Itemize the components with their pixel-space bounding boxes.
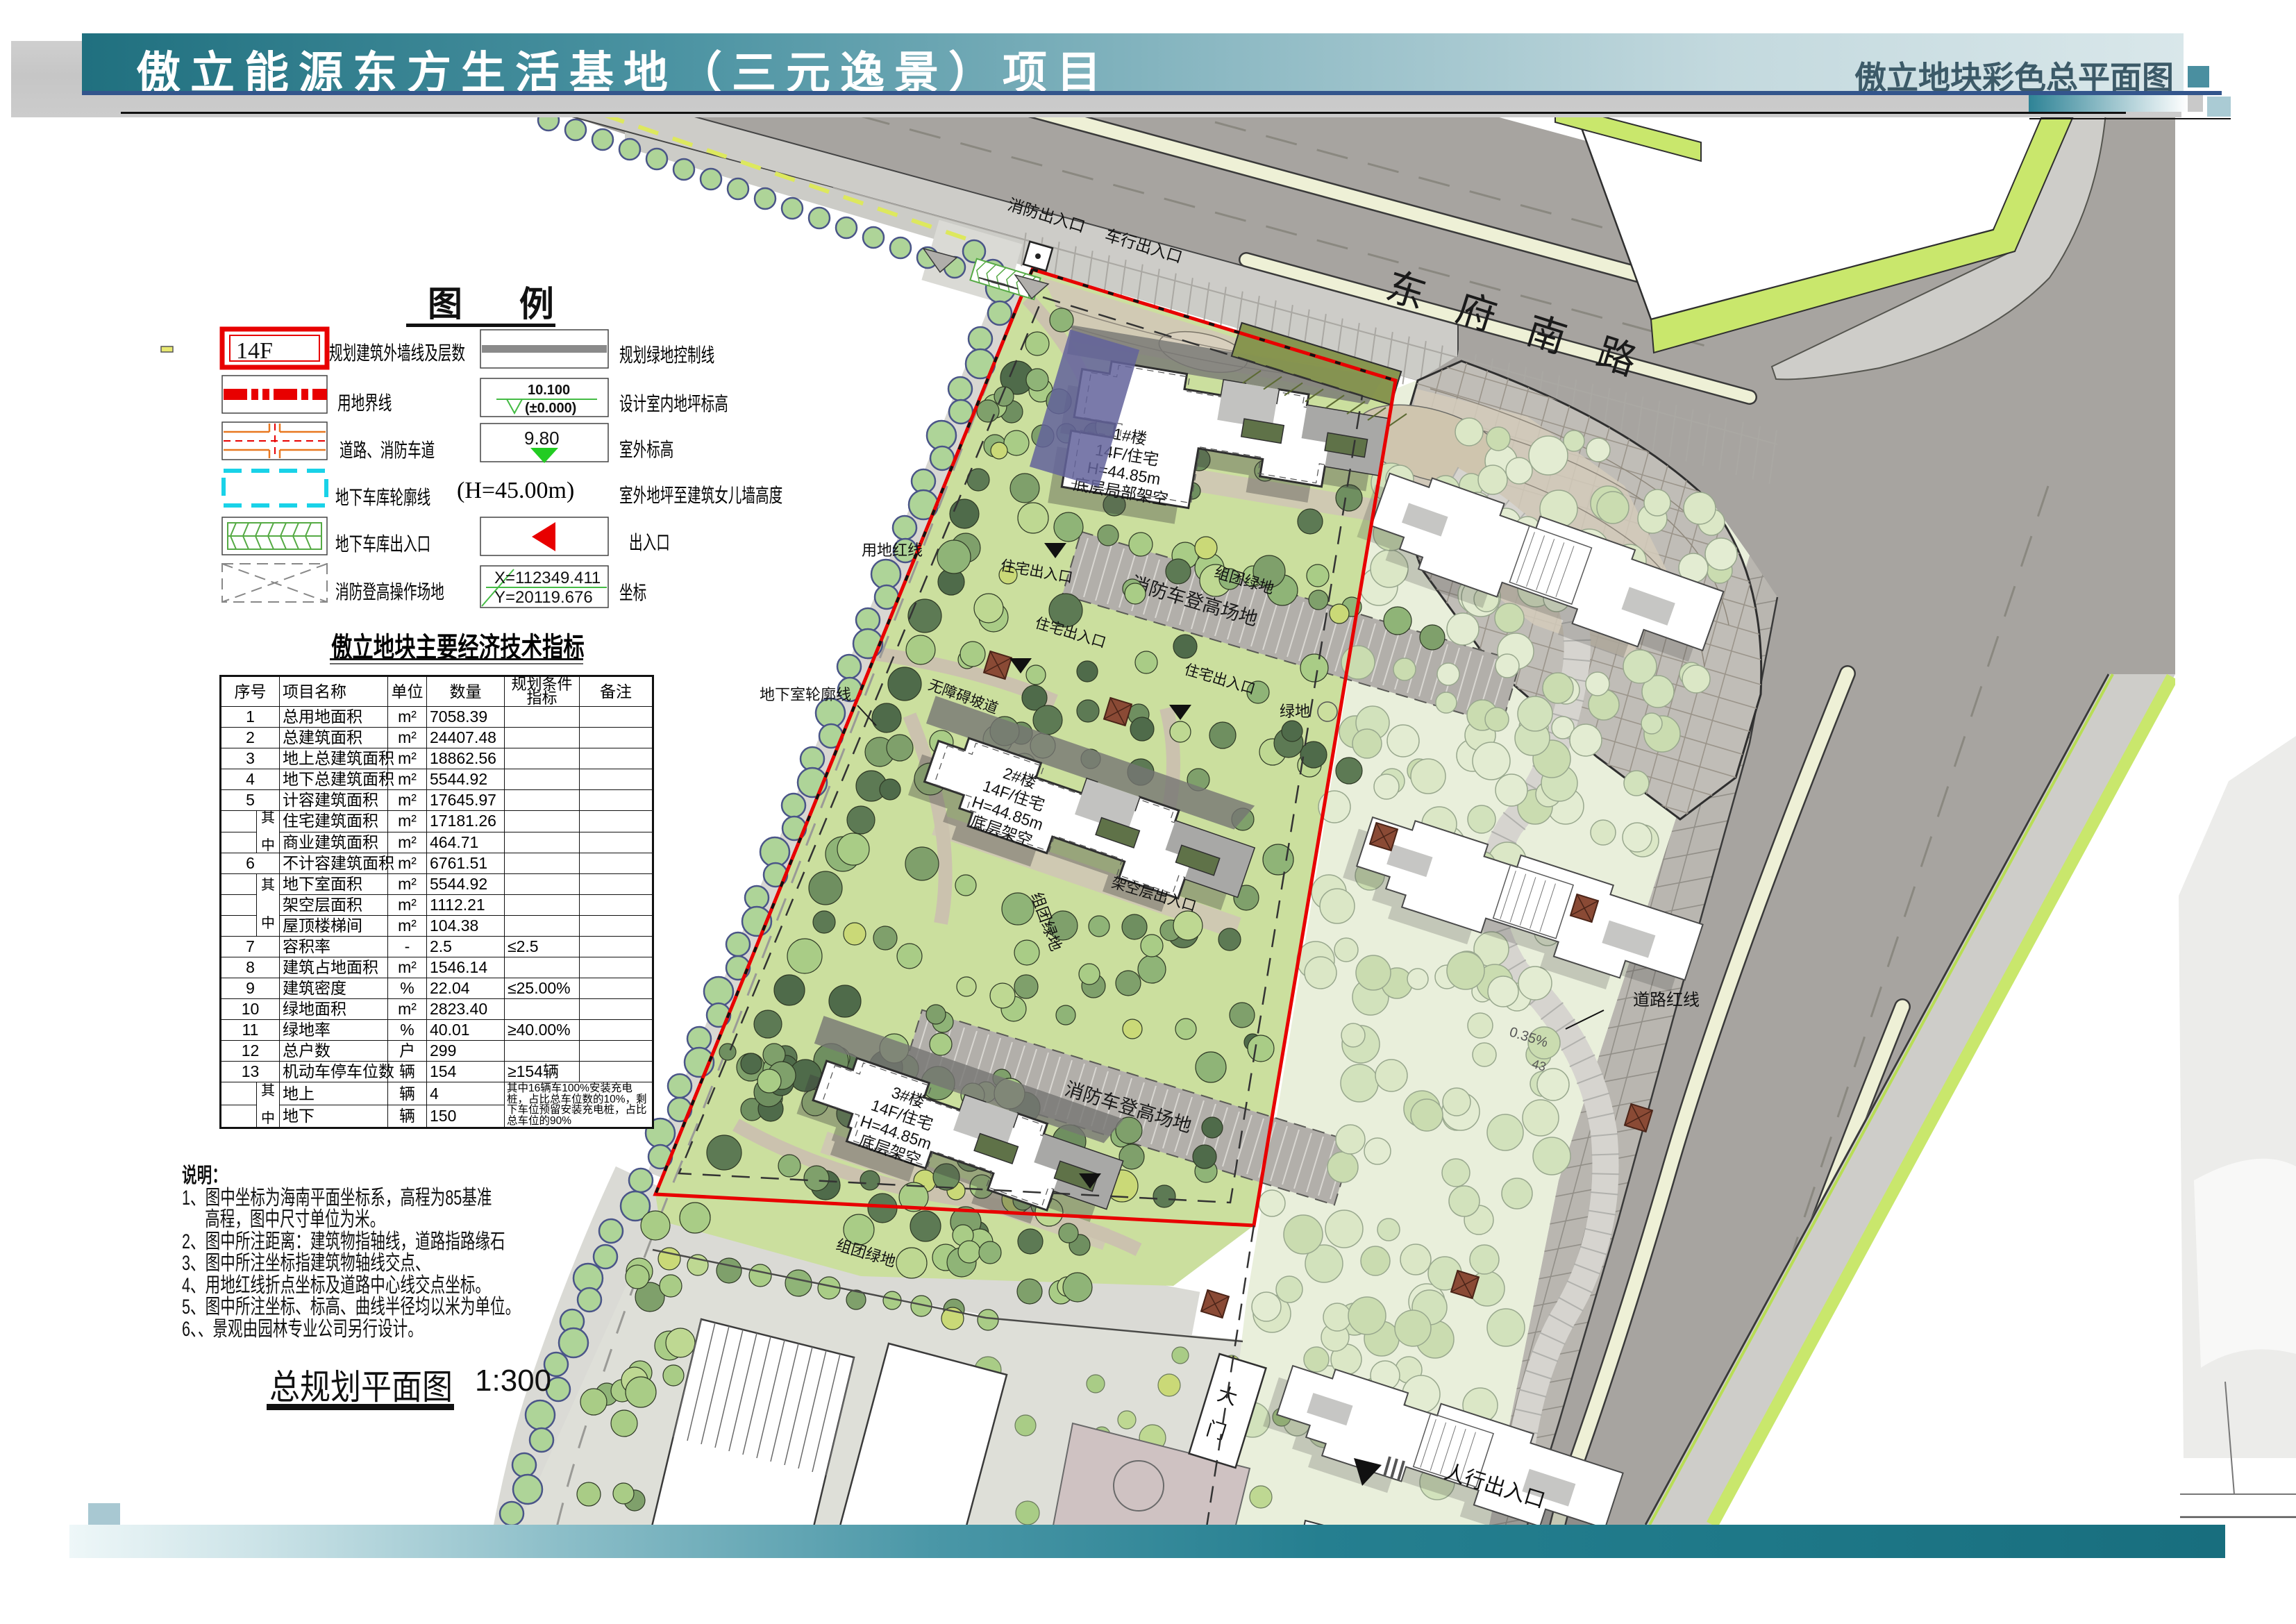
svg-text:用地红线: 用地红线	[862, 542, 923, 559]
svg-text:道路红线: 道路红线	[1633, 991, 1700, 1010]
svg-text:(±0.000): (±0.000)	[525, 401, 576, 416]
svg-text:9.80: 9.80	[524, 428, 560, 449]
svg-text:绿地: 绿地	[1280, 703, 1310, 720]
svg-text:地下室轮廓线: 地下室轮廓线	[760, 686, 851, 703]
svg-text:X=112349.411: X=112349.411	[494, 569, 601, 587]
svg-text:Y=20119.676: Y=20119.676	[494, 588, 593, 607]
svg-text:10.100: 10.100	[528, 383, 570, 398]
svg-text:14F: 14F	[236, 338, 273, 364]
